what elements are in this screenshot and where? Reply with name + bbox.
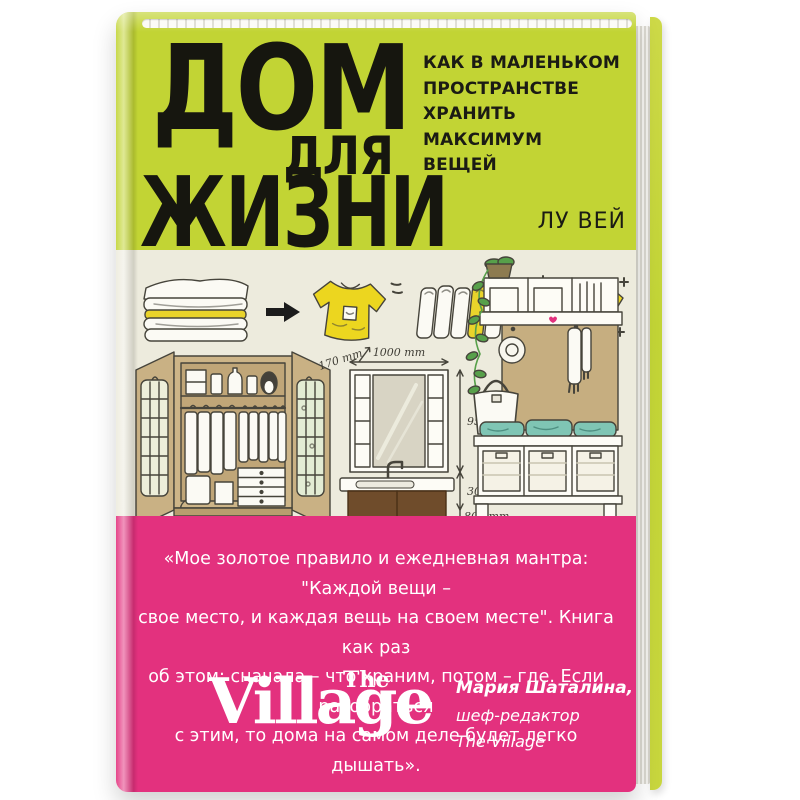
back-cover-edge xyxy=(650,17,662,790)
book-top-pages-edge xyxy=(142,19,632,28)
quote-line: свое место, и каждая вещь на своем месте… xyxy=(130,604,622,663)
wrinkled-tshirt-illustration xyxy=(311,278,403,343)
book-front-cover: ДОМ ДЛЯ ЖИЗНИ КАК В МАЛЕНЬКОМ ПРОСТРАНСТ… xyxy=(116,12,636,792)
subtitle-line: ВЕЩЕЙ xyxy=(423,153,620,179)
wardrobe-illustration xyxy=(136,352,330,516)
book: ДОМ ДЛЯ ЖИЗНИ КАК В МАЛЕНЬКОМ ПРОСТРАНСТ… xyxy=(116,12,662,792)
svg-text:170 mm: 170 mm xyxy=(317,346,364,372)
cover-illustration-band: 170 mm 1000 mm xyxy=(116,250,636,516)
cover-green-band: ДОМ ДЛЯ ЖИЗНИ КАК В МАЛЕНЬКОМ ПРОСТРАНСТ… xyxy=(116,12,636,250)
folded-stack-illustration xyxy=(144,279,248,341)
author-name: ЛУ ВЕЙ xyxy=(538,209,626,234)
cover-quote-band: «Мое золотое правило и ежедневная мантра… xyxy=(116,516,636,792)
subtitle-line: МАКСИМУМ xyxy=(423,128,620,154)
basket-illustration xyxy=(483,451,614,491)
dimension-width: 1000 mm xyxy=(373,346,425,359)
endorsement-row: The Village Мария Шаталина, шеф-редактор… xyxy=(116,662,636,788)
reviewer-role: шеф-редактор xyxy=(456,706,633,725)
quote-line: «Мое золотое правило и ежедневная мантра… xyxy=(130,545,622,604)
logo-village-text: Village xyxy=(208,664,432,738)
subtitle-line: ХРАНИТЬ xyxy=(423,102,620,128)
reviewer-name: Мария Шаталина, xyxy=(456,678,633,698)
reviewer-attribution: Мария Шаталина, шеф-редактор The Village xyxy=(456,678,633,751)
title-word-zhizni: ЖИЗНИ xyxy=(140,164,447,261)
subtitle-line: ПРОСТРАНСТВЕ xyxy=(423,77,620,103)
subtitle-line: КАК В МАЛЕНЬКОМ xyxy=(423,51,620,77)
hallway-bench-illustration xyxy=(465,257,622,516)
logo-the-text: The xyxy=(343,667,389,693)
the-village-logo: The Village xyxy=(208,670,432,733)
storage-illustrations: 170 mm 1000 mm xyxy=(116,250,636,516)
book-cover-photo: ДОМ ДЛЯ ЖИЗНИ КАК В МАЛЕНЬКОМ ПРОСТРАНСТ… xyxy=(0,0,800,800)
arrow-icon xyxy=(266,302,300,322)
subtitle: КАК В МАЛЕНЬКОМ ПРОСТРАНСТВЕ ХРАНИТЬ МАК… xyxy=(423,51,620,179)
reviewer-org: The Village xyxy=(456,732,633,751)
